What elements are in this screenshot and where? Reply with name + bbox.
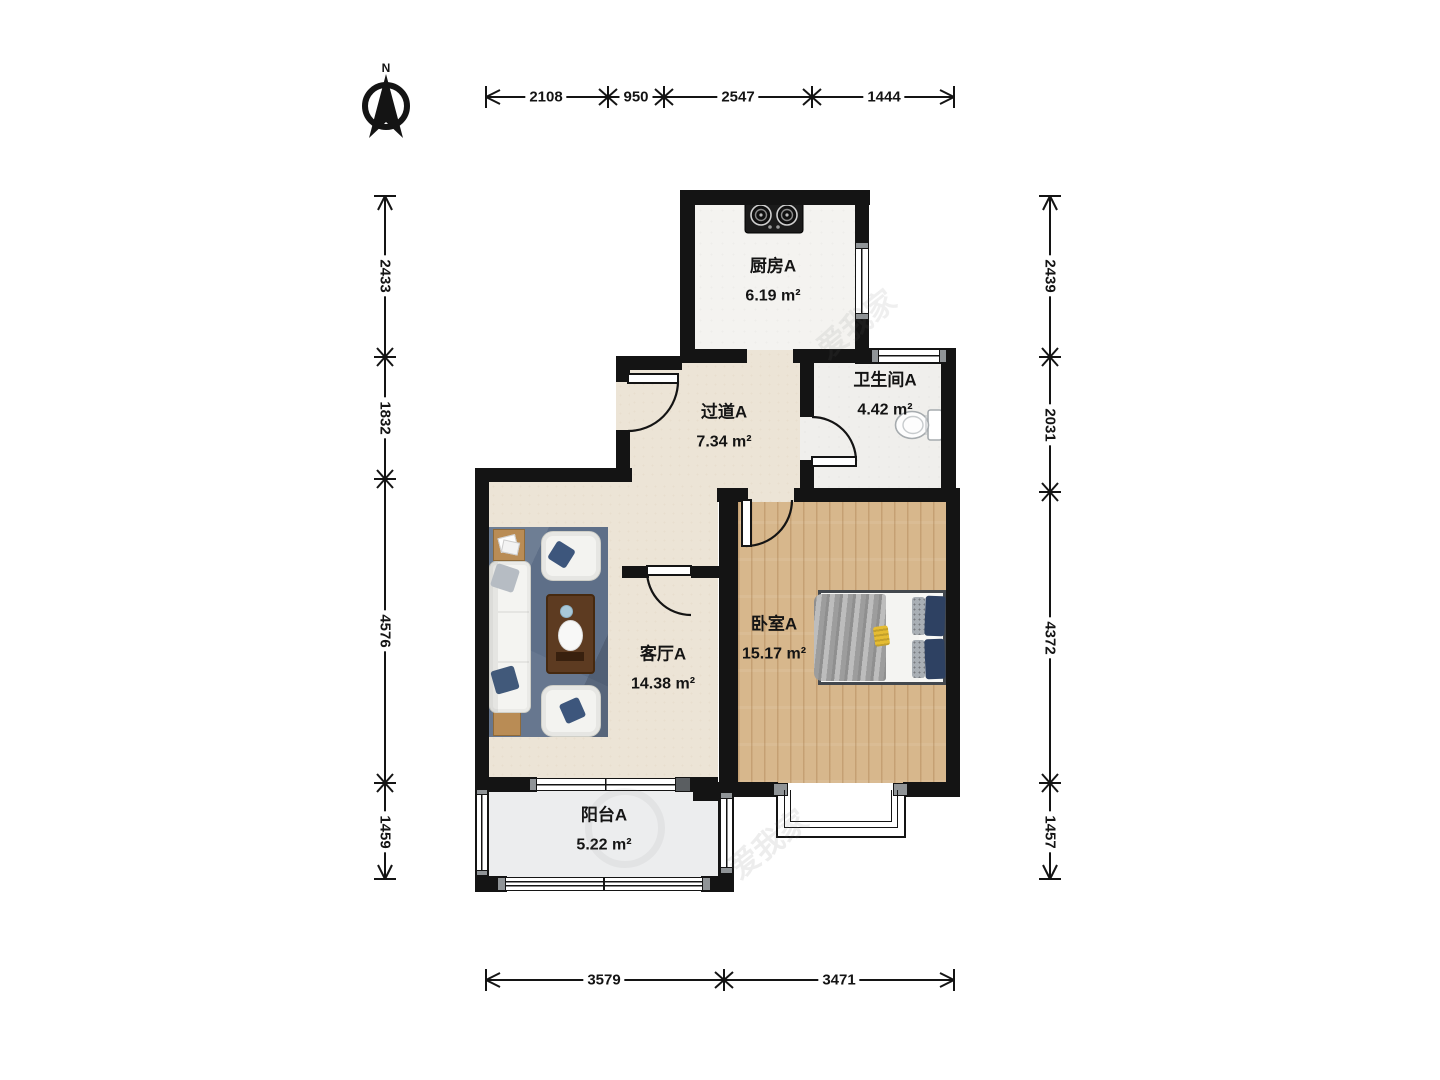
wall xyxy=(693,777,718,801)
dish-icon xyxy=(560,605,573,618)
room-area: 4.42 m² xyxy=(853,396,916,425)
room-label-bathroom: 卫生间A 4.42 m² xyxy=(853,365,916,424)
kitchen-opening xyxy=(747,350,793,363)
room-name: 厨房A xyxy=(745,251,800,282)
room-name: 阳台A xyxy=(576,800,631,831)
wall xyxy=(941,348,956,502)
dimension-chain-bottom: 3579 3471 xyxy=(485,967,955,993)
dimension-chain-right: 2439 2031 4372 1457 xyxy=(1037,195,1063,880)
window-cap xyxy=(871,349,879,363)
floor-plan: N xyxy=(0,0,1440,1080)
wall xyxy=(719,488,738,784)
window-cap xyxy=(675,777,691,792)
sofa-cushion-line xyxy=(498,611,529,613)
room-area: 5.22 m² xyxy=(576,831,631,860)
dimension-value: 2439 xyxy=(1042,255,1059,296)
room-name: 客厅A xyxy=(631,639,695,670)
pillow-icon xyxy=(924,596,945,637)
kitchen-window xyxy=(855,248,869,314)
armchair-icon xyxy=(541,531,601,581)
bedroom-door xyxy=(738,492,800,554)
room-area: 15.17 m² xyxy=(742,640,806,669)
room-name: 卫生间A xyxy=(853,365,916,396)
room-label-balcony: 阳台A 5.22 m² xyxy=(576,800,631,859)
dimension-value: 1444 xyxy=(863,89,904,106)
pillow-icon xyxy=(559,697,587,725)
wall xyxy=(680,349,747,363)
papers-icon xyxy=(501,539,520,555)
entry-door xyxy=(614,372,686,436)
dimension-chain-top: 2108 950 2547 1444 xyxy=(485,84,955,110)
dimension-value: 2108 xyxy=(525,89,566,106)
living-room-door xyxy=(643,564,699,624)
dimension-value: 4576 xyxy=(377,610,394,651)
window-cap xyxy=(497,877,506,891)
dimension-value: 950 xyxy=(619,89,652,106)
balcony-right-window xyxy=(720,798,733,869)
wall xyxy=(800,362,814,417)
dimension-value: 3471 xyxy=(818,972,859,989)
side-table-icon xyxy=(493,529,525,561)
plate-icon xyxy=(558,620,583,651)
bed-accessory xyxy=(873,625,891,647)
sofa-cushion-line xyxy=(498,661,529,663)
wall xyxy=(946,488,960,797)
wall xyxy=(903,782,960,797)
pillow-icon xyxy=(912,640,925,678)
room-area: 6.19 m² xyxy=(745,282,800,311)
window-cap xyxy=(476,789,488,795)
window-cap xyxy=(720,867,733,874)
dimension-value: 4372 xyxy=(1042,617,1059,658)
wall xyxy=(475,468,632,482)
armchair-icon xyxy=(541,685,601,737)
dimension-chain-left: 2433 1832 4576 1459 xyxy=(372,195,398,880)
bay-window-frame xyxy=(790,790,892,822)
dimension-value: 2547 xyxy=(717,89,758,106)
room-area: 7.34 m² xyxy=(696,428,751,457)
dimension-value: 1459 xyxy=(377,811,394,852)
pillow-icon xyxy=(547,540,576,569)
window-cap xyxy=(855,242,869,249)
pillow-icon xyxy=(924,639,945,680)
window-cap xyxy=(720,792,733,799)
window-divider xyxy=(603,877,605,891)
dimension-value: 1832 xyxy=(377,397,394,438)
room-label-kitchen: 厨房A 6.19 m² xyxy=(745,251,800,310)
bathroom-window xyxy=(878,349,940,363)
room-label-bedroom: 卧室A 15.17 m² xyxy=(742,609,806,668)
stove-icon xyxy=(744,200,804,234)
pillow-icon xyxy=(912,597,925,635)
compass-north-label: N xyxy=(378,61,395,75)
window-cap xyxy=(476,870,488,876)
room-label-living-room: 客厅A 14.38 m² xyxy=(631,639,695,698)
wall xyxy=(680,190,870,205)
room-area: 14.38 m² xyxy=(631,670,695,699)
balcony-sliding-door xyxy=(536,778,676,791)
table-tray xyxy=(556,652,584,661)
window-cap xyxy=(855,313,869,320)
dimension-value: 3579 xyxy=(583,972,624,989)
window-cap xyxy=(529,778,537,791)
dimension-value: 1457 xyxy=(1042,811,1059,852)
room-name: 卧室A xyxy=(742,609,806,640)
wall xyxy=(475,468,489,792)
room-label-hallway: 过道A 7.34 m² xyxy=(696,397,751,456)
window-cap xyxy=(702,877,711,891)
balcony-left-window xyxy=(476,794,488,872)
coffee-table-icon xyxy=(546,594,595,674)
dimension-value: 2031 xyxy=(1042,404,1059,445)
dimension-value: 2433 xyxy=(377,255,394,296)
wall xyxy=(794,488,960,502)
room-name: 过道A xyxy=(696,397,751,428)
wall xyxy=(793,349,855,363)
wall xyxy=(680,190,695,363)
window-cap xyxy=(939,349,947,363)
